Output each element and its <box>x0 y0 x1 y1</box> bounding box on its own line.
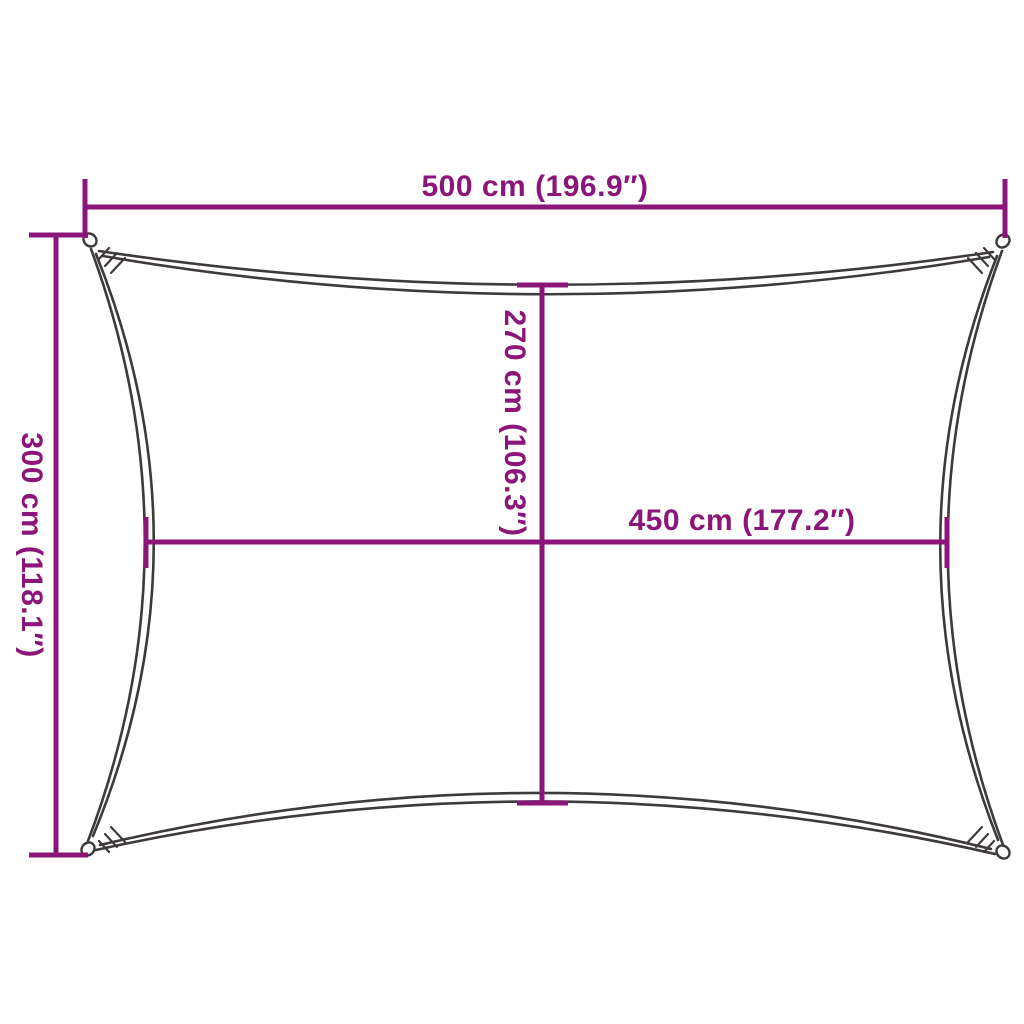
sail-outline <box>79 231 1012 861</box>
sail-edge-right-outer <box>948 251 1003 845</box>
dim-center-height-label: 270 cm (106.3″) <box>498 309 531 536</box>
dim-center-width-label: 450 cm (177.2″) <box>628 504 855 537</box>
sail-edge-top-inner <box>103 256 989 294</box>
corner-loops <box>79 231 1012 861</box>
sail-edge-bottom-outer <box>96 801 995 854</box>
sail-edge-left-outer <box>88 249 145 841</box>
dim-left-height-label: 300 cm (118.1″) <box>15 432 48 657</box>
sail-edge-top-outer <box>99 251 993 285</box>
dim-top-width-label: 500 cm (196.9″) <box>421 170 648 203</box>
corner-loop-bottom-right-icon <box>994 843 1012 861</box>
shade-sail-dimension-diagram: 500 cm (196.9″) 300 cm (118.1″) 270 cm (… <box>0 0 1024 1024</box>
product-dimension-image: 500 cm (196.9″) 300 cm (118.1″) 270 cm (… <box>0 0 1024 1024</box>
